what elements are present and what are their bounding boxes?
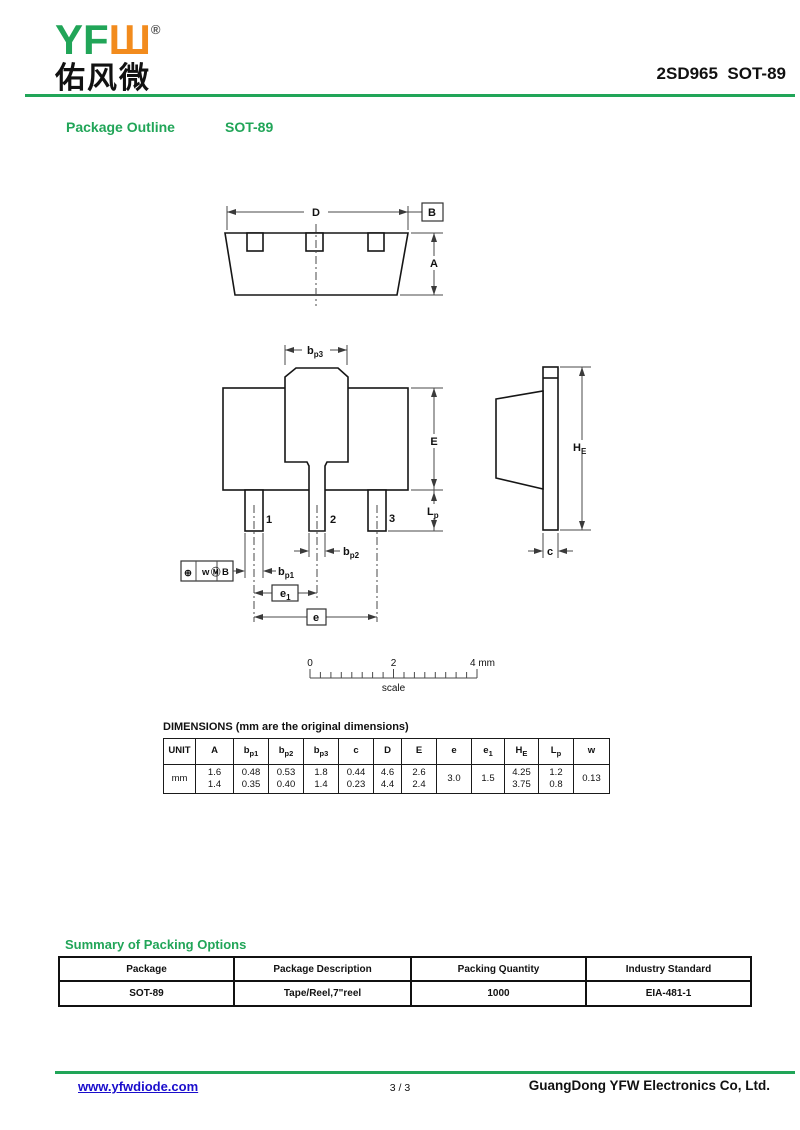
footer-rule xyxy=(55,1071,795,1074)
val-e: 3.0 xyxy=(437,765,472,794)
packing-header-row: Package Package Description Packing Quan… xyxy=(59,957,751,981)
packing-col-package: Package xyxy=(59,957,234,981)
feature-control-frame: ⊕ w Ⓜ B xyxy=(181,561,245,581)
col-a: A xyxy=(196,739,234,765)
packing-col-description: Package Description xyxy=(234,957,411,981)
packing-col-quantity: Packing Quantity xyxy=(411,957,586,981)
registered-mark: ® xyxy=(151,22,161,37)
side-view: HE c xyxy=(496,367,593,558)
scale-tick-2: 2 xyxy=(391,658,397,669)
packing-description: Tape/Reel,7"reel xyxy=(234,981,411,1006)
col-unit: UNIT xyxy=(164,739,196,765)
section-subtitle: SOT-89 xyxy=(225,119,273,135)
val-e1: 1.5 xyxy=(472,765,505,794)
packing-title: Summary of Packing Options xyxy=(65,937,246,952)
val-lp: 1.20.8 xyxy=(539,765,574,794)
col-d: D xyxy=(374,739,402,765)
dim-label-c: c xyxy=(547,546,553,558)
dim-label-e-body: E xyxy=(430,436,437,448)
pin-3-label: 3 xyxy=(389,513,395,525)
unit-cell: mm xyxy=(164,765,196,794)
col-bp1: bp1 xyxy=(234,739,269,765)
scale-bar: 0 2 4 mm scale xyxy=(307,658,495,694)
scale-tick-4mm: 4 mm xyxy=(470,658,495,669)
tolerance-w: w xyxy=(201,567,210,578)
dim-label-d: D xyxy=(312,207,320,219)
scale-tick-0: 0 xyxy=(307,658,313,669)
val-a: 1.61.4 xyxy=(196,765,234,794)
company-name: GuangDong YFW Electronics Co, Ltd. xyxy=(529,1078,770,1093)
position-symbol: ⊕ xyxy=(184,568,192,579)
pin-2-label: 2 xyxy=(330,514,336,526)
packing-data-row: SOT-89 Tape/Reel,7"reel 1000 EIA-481-1 xyxy=(59,981,751,1006)
val-bp2: 0.530.40 xyxy=(269,765,304,794)
packing-standard: EIA-481-1 xyxy=(586,981,751,1006)
part-number: 2SD965 SOT-89 xyxy=(657,64,786,84)
mmc-modifier: Ⓜ xyxy=(211,567,221,579)
packing-table: Package Package Description Packing Quan… xyxy=(58,956,752,1007)
top-view: D B A xyxy=(225,203,443,306)
val-w: 0.13 xyxy=(574,765,610,794)
datum-label-b: B xyxy=(428,207,436,219)
packing-col-standard: Industry Standard xyxy=(586,957,751,981)
section-title: Package Outline xyxy=(66,119,175,135)
val-e-body: 2.62.4 xyxy=(402,765,437,794)
dims-value-row: mm 1.61.4 0.480.35 0.530.40 1.81.4 0.440… xyxy=(164,765,610,794)
packing-package: SOT-89 xyxy=(59,981,234,1006)
pin-1-label: 1 xyxy=(266,514,272,526)
dim-label-bp2: bp2 xyxy=(343,546,360,560)
dim-label-bp1: bp1 xyxy=(278,566,295,580)
scale-caption: scale xyxy=(382,683,406,694)
packing-quantity: 1000 xyxy=(411,981,586,1006)
col-e: e xyxy=(437,739,472,765)
val-he: 4.253.75 xyxy=(505,765,539,794)
col-bp3: bp3 xyxy=(304,739,339,765)
dim-label-a: A xyxy=(430,258,438,270)
val-bp3: 1.81.4 xyxy=(304,765,339,794)
col-e1: e1 xyxy=(472,739,505,765)
val-c: 0.440.23 xyxy=(339,765,374,794)
logo: YFШ® 佑风微 xyxy=(55,8,160,96)
dims-header-row: UNIT A bp1 bp2 bp3 c D E e e1 HE Lp w xyxy=(164,739,610,765)
col-w: w xyxy=(574,739,610,765)
dimensions-table: UNIT A bp1 bp2 bp3 c D E e e1 HE Lp w mm… xyxy=(163,738,610,794)
datum-ref-b: B xyxy=(222,567,229,578)
logo-chinese: 佑风微 xyxy=(55,62,160,96)
val-bp1: 0.480.35 xyxy=(234,765,269,794)
col-bp2: bp2 xyxy=(269,739,304,765)
col-c: c xyxy=(339,739,374,765)
val-d: 4.64.4 xyxy=(374,765,402,794)
logo-wordmark: YFШ® xyxy=(55,8,160,62)
front-view: 1 2 3 bp3 E Lp bp2 xyxy=(181,343,444,625)
datasheet-page: { "header": { "logo_text": "YFШ", "logo_… xyxy=(0,0,800,1130)
dim-label-e: e xyxy=(313,612,319,624)
col-e-body: E xyxy=(402,739,437,765)
header-rule xyxy=(25,94,795,97)
col-he: HE xyxy=(505,739,539,765)
dimensions-title: DIMENSIONS (mm are the original dimensio… xyxy=(163,721,409,733)
package-outline-drawing: D B A 1 2 3 bp3 xyxy=(0,150,800,695)
col-lp: Lp xyxy=(539,739,574,765)
